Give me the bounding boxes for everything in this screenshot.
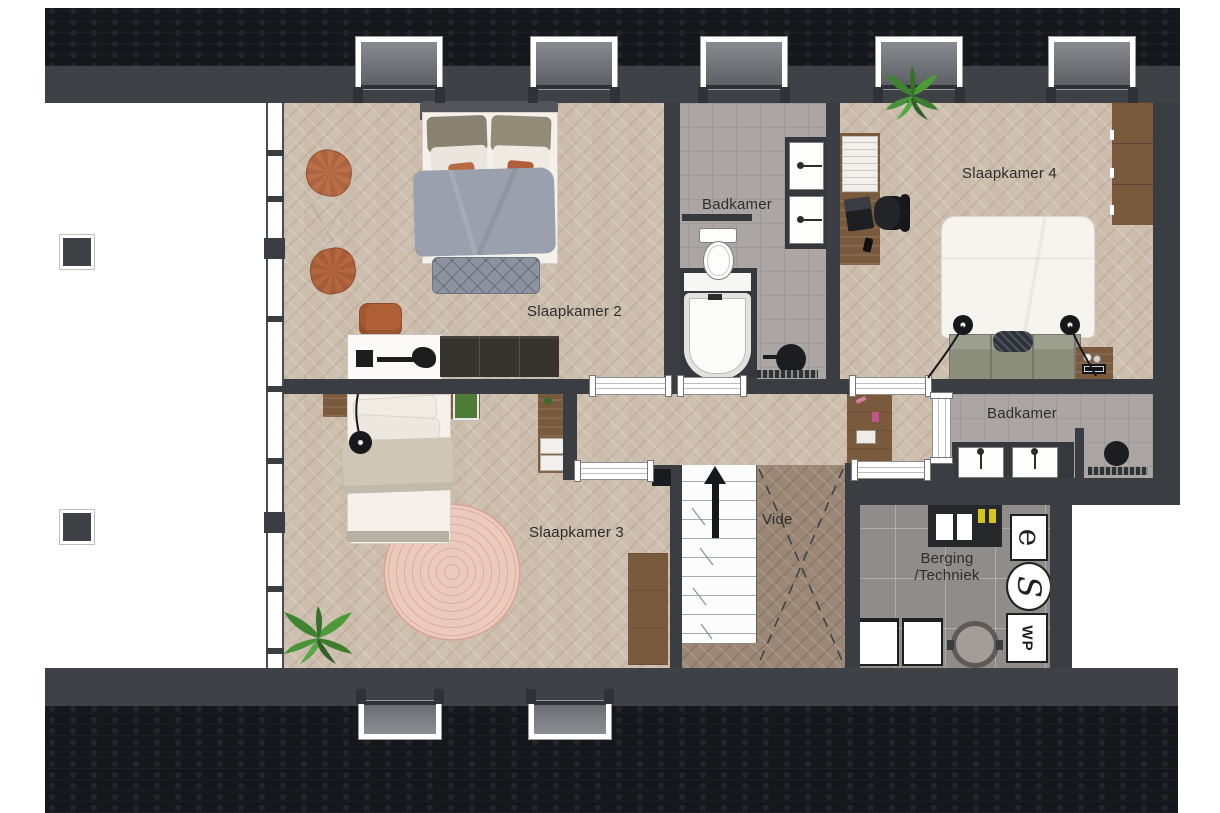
floor-plan: e S WP bbox=[0, 0, 1220, 813]
wall bbox=[845, 478, 1180, 505]
window-jamb bbox=[698, 87, 708, 103]
faucet-icon bbox=[802, 219, 822, 221]
window-jamb bbox=[955, 87, 965, 103]
window-jamb bbox=[604, 689, 614, 704]
electric-meter: e bbox=[1010, 514, 1048, 561]
newel-post bbox=[652, 469, 671, 486]
shelf-ledge bbox=[682, 214, 752, 221]
window-jamb bbox=[356, 689, 366, 704]
utility-cabinet bbox=[928, 504, 1002, 547]
wardrobe bbox=[440, 336, 559, 377]
shelf-drawer bbox=[540, 438, 564, 454]
door-slaapkamer3 bbox=[578, 462, 650, 480]
window-glass bbox=[706, 42, 782, 89]
shower-valve bbox=[763, 355, 778, 359]
staircase bbox=[682, 465, 757, 643]
folded-throw bbox=[993, 331, 1033, 352]
heat-pump-unit: WP bbox=[1006, 613, 1048, 663]
wall bbox=[664, 103, 680, 379]
label-berging-line2: /Techniek bbox=[893, 567, 1001, 584]
cabinet-box bbox=[936, 514, 953, 540]
label-badkamer-right: Badkamer bbox=[987, 405, 1057, 422]
door-slaapkamer4 bbox=[853, 377, 928, 395]
pendant-lamp-icon bbox=[349, 431, 372, 454]
wardrobe-door-gap bbox=[1110, 168, 1114, 178]
door-slaapkamer2 bbox=[593, 377, 668, 395]
window-jamb bbox=[610, 87, 620, 103]
tool-item bbox=[978, 509, 985, 523]
window-glass bbox=[534, 701, 606, 734]
ventilation-unit: S bbox=[1006, 562, 1052, 611]
sink bbox=[789, 196, 824, 244]
column bbox=[264, 512, 285, 533]
door-badkamer-right bbox=[932, 396, 951, 460]
mullion bbox=[266, 150, 284, 156]
window-jamb bbox=[353, 87, 363, 103]
ladder-shelf bbox=[847, 391, 892, 467]
duvet bbox=[413, 167, 556, 257]
dormer-window bbox=[528, 700, 612, 740]
heat-pump-label: WP bbox=[1018, 625, 1035, 651]
cabinet-box bbox=[957, 514, 972, 540]
window-jamb bbox=[434, 689, 444, 704]
door-berging bbox=[855, 461, 927, 479]
bathtub bbox=[684, 293, 751, 379]
shower-drain bbox=[1088, 467, 1148, 475]
boiler-clip bbox=[947, 640, 954, 650]
framed-art bbox=[453, 390, 479, 420]
cabinet bbox=[628, 553, 668, 665]
office-chair-back bbox=[900, 194, 910, 232]
window-jamb bbox=[873, 87, 883, 103]
shower-drain bbox=[757, 370, 818, 378]
mullion bbox=[266, 196, 284, 202]
plant-icon bbox=[282, 604, 354, 666]
electric-meter-label: e bbox=[1011, 529, 1046, 547]
shower-head-icon bbox=[1104, 441, 1129, 466]
desk-item bbox=[356, 350, 373, 367]
nightstand-item bbox=[1083, 353, 1092, 362]
door-badkamer-top bbox=[681, 377, 743, 395]
desk-plant bbox=[412, 347, 436, 368]
dormer-window bbox=[530, 36, 618, 90]
boiler-clip bbox=[996, 640, 1003, 650]
mullion bbox=[266, 386, 284, 392]
desk-item bbox=[377, 357, 417, 362]
window-jamb bbox=[1046, 87, 1056, 103]
window-glass bbox=[364, 701, 436, 734]
wall bbox=[1153, 103, 1180, 505]
label-slaapkamer-4: Slaapkamer 4 bbox=[962, 165, 1057, 182]
bed-bench bbox=[432, 257, 540, 294]
wardrobe bbox=[1112, 102, 1155, 225]
wall bbox=[1075, 428, 1084, 484]
side-table bbox=[300, 199, 350, 245]
up-arrow-icon bbox=[704, 466, 726, 484]
armchair bbox=[359, 303, 402, 337]
label-vide: Vide bbox=[762, 511, 793, 528]
skylight-icon bbox=[63, 513, 91, 541]
wardrobe-door-gap bbox=[1110, 130, 1114, 140]
faucet-icon bbox=[802, 165, 822, 167]
tool-item bbox=[989, 509, 996, 523]
label-berging-line1: Berging bbox=[893, 550, 1001, 567]
book-stack bbox=[842, 136, 878, 192]
nightstand-item bbox=[1093, 355, 1101, 363]
toilet bbox=[703, 241, 734, 280]
ventilation-label: S bbox=[1010, 576, 1048, 598]
washing-machine bbox=[858, 618, 899, 666]
plant-icon bbox=[884, 64, 940, 124]
mullion bbox=[266, 586, 284, 592]
sink bbox=[1012, 447, 1058, 478]
nightstand-clock bbox=[1082, 364, 1106, 374]
mullion bbox=[266, 316, 284, 322]
wall bbox=[1050, 505, 1072, 668]
wall bbox=[826, 103, 840, 379]
mullion bbox=[266, 458, 284, 464]
faucet-icon bbox=[1034, 451, 1036, 469]
laptop bbox=[844, 196, 874, 231]
pendant-lamp-icon bbox=[1060, 315, 1080, 335]
dormer-window bbox=[355, 36, 443, 90]
shelf-item bbox=[544, 397, 552, 405]
up-arrow-shaft bbox=[712, 484, 719, 538]
pendant-lamp-icon bbox=[953, 315, 973, 335]
shelf-item bbox=[856, 430, 876, 444]
dryer bbox=[902, 618, 943, 666]
column bbox=[264, 238, 285, 259]
shelf-item bbox=[872, 412, 879, 422]
shelf-drawer bbox=[540, 455, 564, 471]
window-jamb bbox=[1128, 87, 1138, 103]
sink bbox=[958, 447, 1004, 478]
dormer-window bbox=[700, 36, 788, 90]
boiler bbox=[951, 621, 999, 668]
dormer-window bbox=[358, 700, 442, 740]
window-jamb bbox=[780, 87, 790, 103]
window-jamb bbox=[528, 87, 538, 103]
label-berging: Berging /Techniek bbox=[893, 550, 1001, 584]
window-jamb bbox=[526, 689, 536, 704]
label-slaapkamer-2: Slaapkamer 2 bbox=[527, 303, 622, 320]
window-glass bbox=[361, 42, 437, 89]
wardrobe-door-gap bbox=[1110, 205, 1114, 215]
wall bbox=[670, 465, 682, 668]
outside-area bbox=[1072, 505, 1180, 668]
sink bbox=[789, 142, 824, 190]
dormer-window bbox=[1048, 36, 1136, 90]
faucet-icon bbox=[980, 451, 982, 469]
window-glass bbox=[536, 42, 612, 89]
window-glass bbox=[1054, 42, 1130, 89]
label-slaapkamer-3: Slaapkamer 3 bbox=[529, 524, 624, 541]
bed-foot bbox=[347, 531, 449, 542]
bathtub-faucet bbox=[708, 294, 722, 300]
label-badkamer-top: Badkamer bbox=[702, 196, 772, 213]
window-jamb bbox=[435, 87, 445, 103]
skylight-icon bbox=[63, 238, 91, 266]
